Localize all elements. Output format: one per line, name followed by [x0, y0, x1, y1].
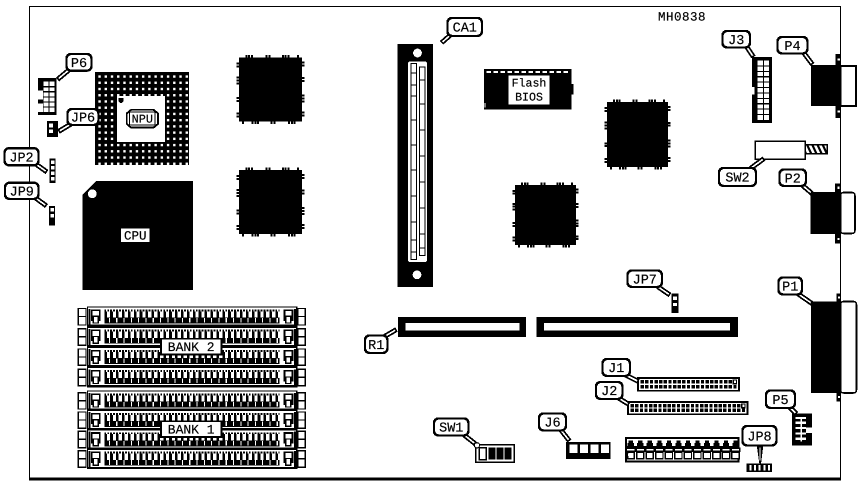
svg-text:SW2: SW2	[725, 172, 749, 187]
svg-text:JP6: JP6	[71, 112, 95, 127]
svg-text:JP2: JP2	[9, 151, 33, 166]
svg-text:MH0838: MH0838	[658, 11, 706, 25]
svg-text:P6: P6	[71, 57, 87, 72]
svg-text:NPU: NPU	[132, 113, 153, 127]
svg-text:Flash: Flash	[512, 78, 547, 91]
svg-text:P1: P1	[782, 281, 798, 296]
svg-text:P4: P4	[784, 40, 800, 55]
svg-text:R1: R1	[368, 339, 384, 354]
svg-text:SW1: SW1	[439, 422, 463, 437]
svg-text:J6: J6	[544, 417, 560, 432]
svg-text:BANK 2: BANK 2	[168, 340, 215, 355]
svg-text:J3: J3	[728, 34, 744, 49]
svg-text:P2: P2	[785, 172, 801, 187]
svg-text:BANK 1: BANK 1	[168, 423, 215, 438]
svg-text:CPU: CPU	[124, 230, 147, 244]
svg-text:J2: J2	[601, 385, 617, 400]
svg-text:J1: J1	[608, 362, 624, 377]
svg-text:CA1: CA1	[453, 22, 477, 37]
svg-text:JP9: JP9	[10, 186, 34, 201]
svg-text:JP7: JP7	[633, 273, 657, 288]
svg-text:JP8: JP8	[747, 430, 771, 445]
svg-text:BIOS: BIOS	[515, 92, 543, 105]
svg-text:P5: P5	[772, 394, 788, 409]
